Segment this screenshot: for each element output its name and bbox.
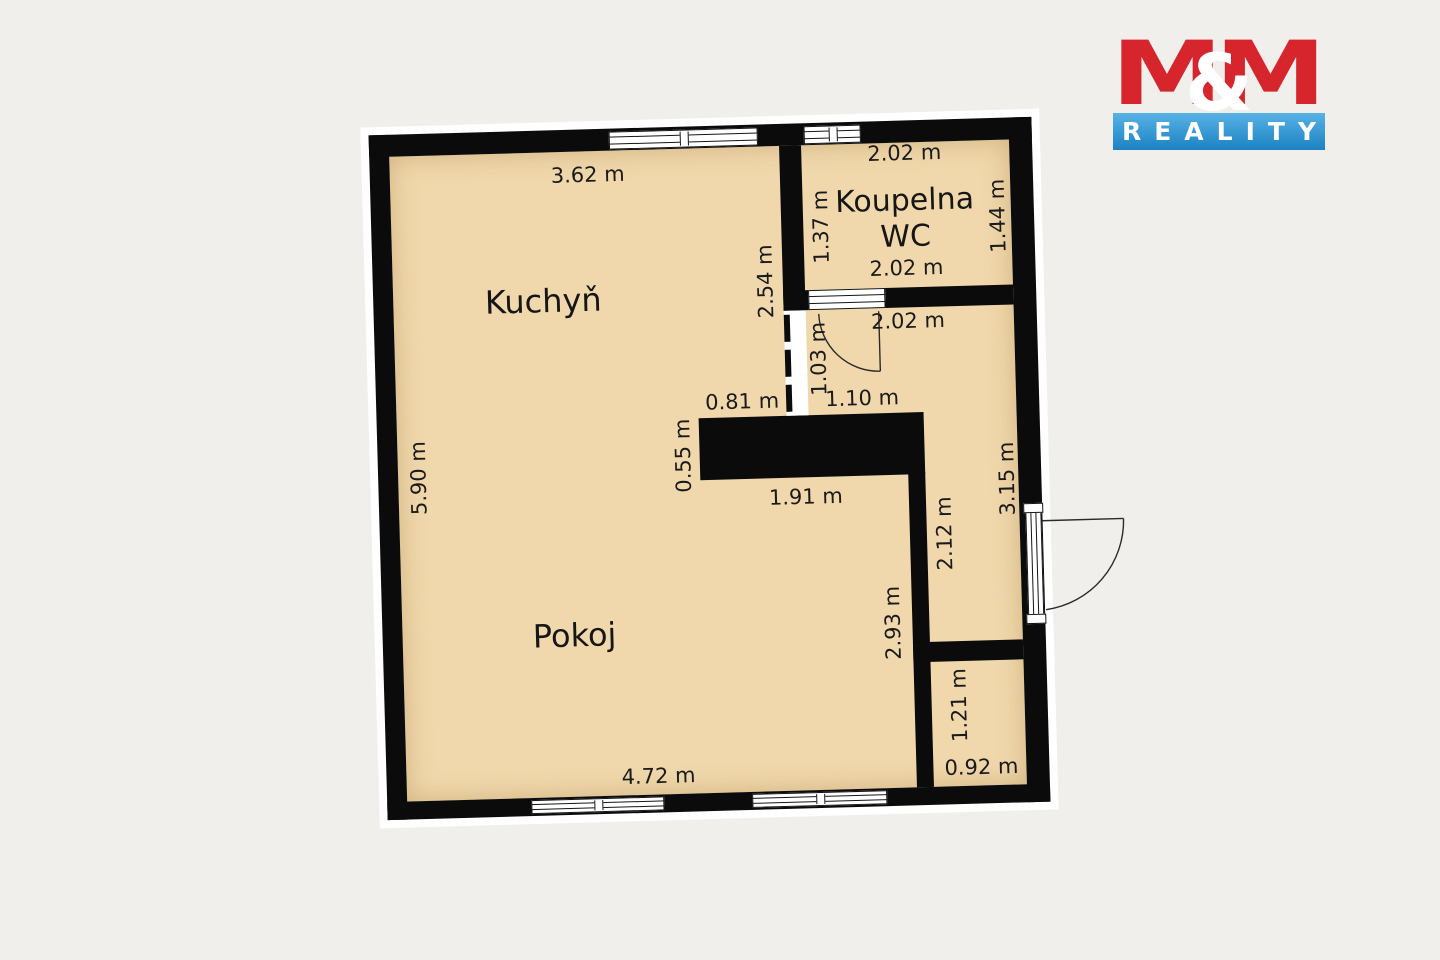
dim-label-core-top-left: 0.81 m xyxy=(705,391,779,414)
dim-label-core-bottom-width: 1.91 m xyxy=(769,486,843,509)
floorplan-paper: Kuchyň Pokoj Koupelna WC 3.62 m 2.02 m 1… xyxy=(360,109,1058,829)
room-label-kitchen: Kuchyň xyxy=(484,282,602,322)
dim-label-bath-bottom-width: 2.02 m xyxy=(869,257,943,280)
dim-label-closet-width: 0.92 m xyxy=(944,756,1018,779)
dim-label-left-wall-height: 5.90 m xyxy=(408,441,431,515)
dim-label-hall-opening-height: 1.03 m xyxy=(807,322,830,396)
dim-label-hall-top-width: 2.02 m xyxy=(871,310,945,333)
logo-ampersand: & xyxy=(1185,48,1253,120)
page: { "page": { "background_color": "#f0efeb… xyxy=(0,0,1440,960)
room-label-wc: WC xyxy=(880,219,932,255)
dim-label-kitchen-top-width: 3.62 m xyxy=(551,164,625,187)
dim-label-closet-height: 1.21 m xyxy=(948,668,971,742)
dim-label-bath-top-width: 2.02 m xyxy=(867,142,941,165)
dim-label-core-left-height: 0.55 m xyxy=(672,418,695,492)
floorplan: Kuchyň Pokoj Koupelna WC 3.62 m 2.02 m 1… xyxy=(369,117,1051,820)
room-label-living: Pokoj xyxy=(532,616,617,655)
logo-mm-mark: M & M xyxy=(1113,38,1325,110)
dim-label-room-bottom-width: 4.72 m xyxy=(621,765,695,788)
dim-label-hall-right-height: 3.15 m xyxy=(996,441,1019,515)
dim-label-room-right-height: 2.93 m xyxy=(882,586,905,660)
dim-label-kitchen-right-height: 2.54 m xyxy=(754,244,777,318)
room-label-bathroom: Koupelna xyxy=(835,182,975,220)
dim-label-core-top-right: 1.10 m xyxy=(825,387,899,410)
dim-label-bath-left-height: 1.37 m xyxy=(810,190,833,264)
mm-reality-logo: M & M REALITY xyxy=(1113,38,1325,150)
dim-label-hall-mid-height: 2.12 m xyxy=(933,496,956,570)
door-swing-arcs xyxy=(369,113,1188,820)
dim-label-bath-right-height: 1.44 m xyxy=(987,179,1010,253)
